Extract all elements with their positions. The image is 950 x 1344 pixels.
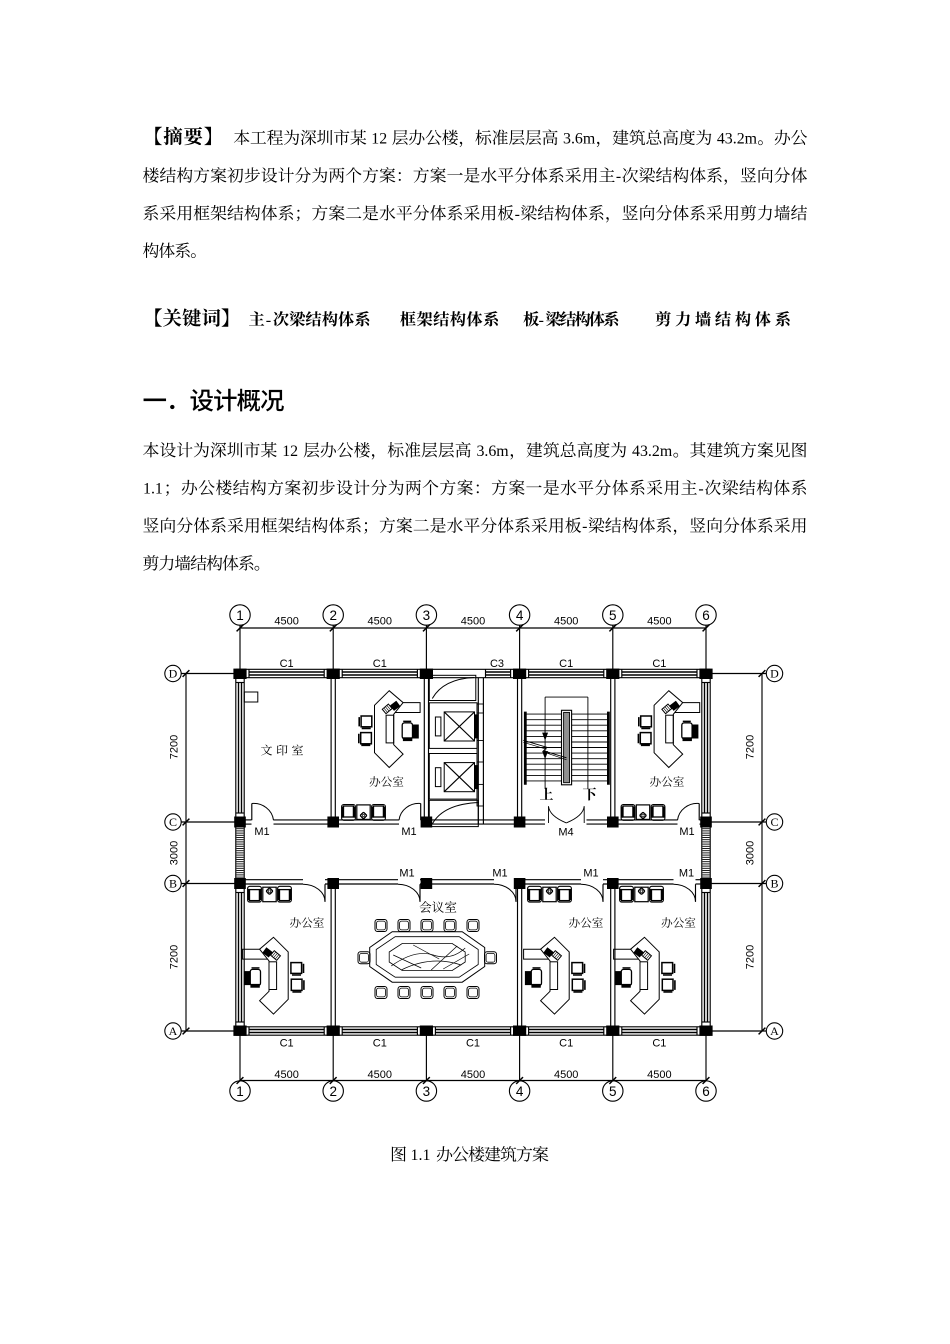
svg-text:-: -	[515, 206, 520, 223]
svg-text:4500: 4500	[554, 616, 578, 628]
svg-text:3: 3	[423, 1084, 431, 1099]
svg-text:C3: C3	[490, 658, 504, 670]
svg-text:4500: 4500	[368, 1069, 392, 1081]
svg-text:4500: 4500	[461, 1069, 485, 1081]
svg-text:7200: 7200	[169, 735, 181, 759]
svg-text:3000: 3000	[745, 841, 757, 865]
svg-text:D: D	[770, 667, 779, 681]
svg-text:-: -	[698, 481, 703, 498]
svg-text:C1: C1	[373, 658, 387, 670]
svg-text:-: -	[538, 310, 543, 329]
svg-text:C1: C1	[280, 1038, 294, 1050]
svg-text:M1: M1	[583, 868, 598, 880]
svg-text:4500: 4500	[368, 616, 392, 628]
svg-text:C1: C1	[466, 1038, 480, 1050]
svg-text:C1: C1	[652, 658, 666, 670]
svg-text:-: -	[266, 310, 271, 329]
svg-text:B: B	[770, 877, 778, 891]
svg-text:3000: 3000	[169, 841, 181, 865]
svg-text:3.6m: 3.6m	[563, 130, 596, 147]
svg-text:M4: M4	[558, 827, 573, 839]
svg-text:1.1: 1.1	[411, 1147, 431, 1164]
svg-text:M1: M1	[399, 868, 414, 880]
svg-text:C: C	[169, 815, 177, 829]
svg-text:43.2m: 43.2m	[717, 130, 758, 147]
svg-text:C1: C1	[559, 658, 573, 670]
svg-text:1.1: 1.1	[143, 481, 163, 498]
svg-text:M1: M1	[401, 826, 416, 838]
svg-text:C1: C1	[280, 658, 294, 670]
svg-text:4500: 4500	[554, 1069, 578, 1081]
svg-text:C1: C1	[373, 1038, 387, 1050]
svg-text:M1: M1	[254, 826, 269, 838]
svg-text:7200: 7200	[169, 945, 181, 969]
svg-text:3: 3	[423, 608, 431, 623]
svg-text:M1: M1	[492, 868, 507, 880]
svg-text:4: 4	[516, 608, 524, 623]
svg-text:4500: 4500	[461, 616, 485, 628]
svg-text:3.6m: 3.6m	[476, 443, 509, 460]
svg-text:4500: 4500	[274, 616, 298, 628]
svg-text:D: D	[169, 667, 178, 681]
svg-text:7200: 7200	[745, 735, 757, 759]
svg-text:4500: 4500	[647, 616, 671, 628]
svg-text:1: 1	[236, 608, 244, 623]
svg-text:-: -	[582, 518, 587, 535]
svg-text:4500: 4500	[647, 1069, 671, 1081]
svg-text:M1: M1	[679, 868, 694, 880]
svg-text:C1: C1	[652, 1038, 666, 1050]
svg-text:4: 4	[516, 1084, 524, 1099]
svg-text:5: 5	[609, 608, 617, 623]
svg-text:7200: 7200	[745, 945, 757, 969]
svg-text:2: 2	[329, 1084, 337, 1099]
svg-text:12: 12	[371, 130, 387, 147]
svg-text:43.2m: 43.2m	[632, 443, 673, 460]
svg-text:B: B	[169, 877, 177, 891]
svg-text:A: A	[770, 1024, 779, 1038]
svg-text:1: 1	[236, 1084, 244, 1099]
svg-text:A: A	[169, 1024, 178, 1038]
svg-text:4500: 4500	[274, 1069, 298, 1081]
svg-text:6: 6	[702, 608, 710, 623]
svg-text:6: 6	[702, 1084, 710, 1099]
svg-text:12: 12	[282, 443, 298, 460]
svg-text:M1: M1	[679, 826, 694, 838]
svg-text:5: 5	[609, 1084, 617, 1099]
svg-text:2: 2	[329, 608, 337, 623]
svg-text:-: -	[616, 168, 621, 185]
svg-text:C: C	[770, 815, 778, 829]
svg-text:C1: C1	[559, 1038, 573, 1050]
